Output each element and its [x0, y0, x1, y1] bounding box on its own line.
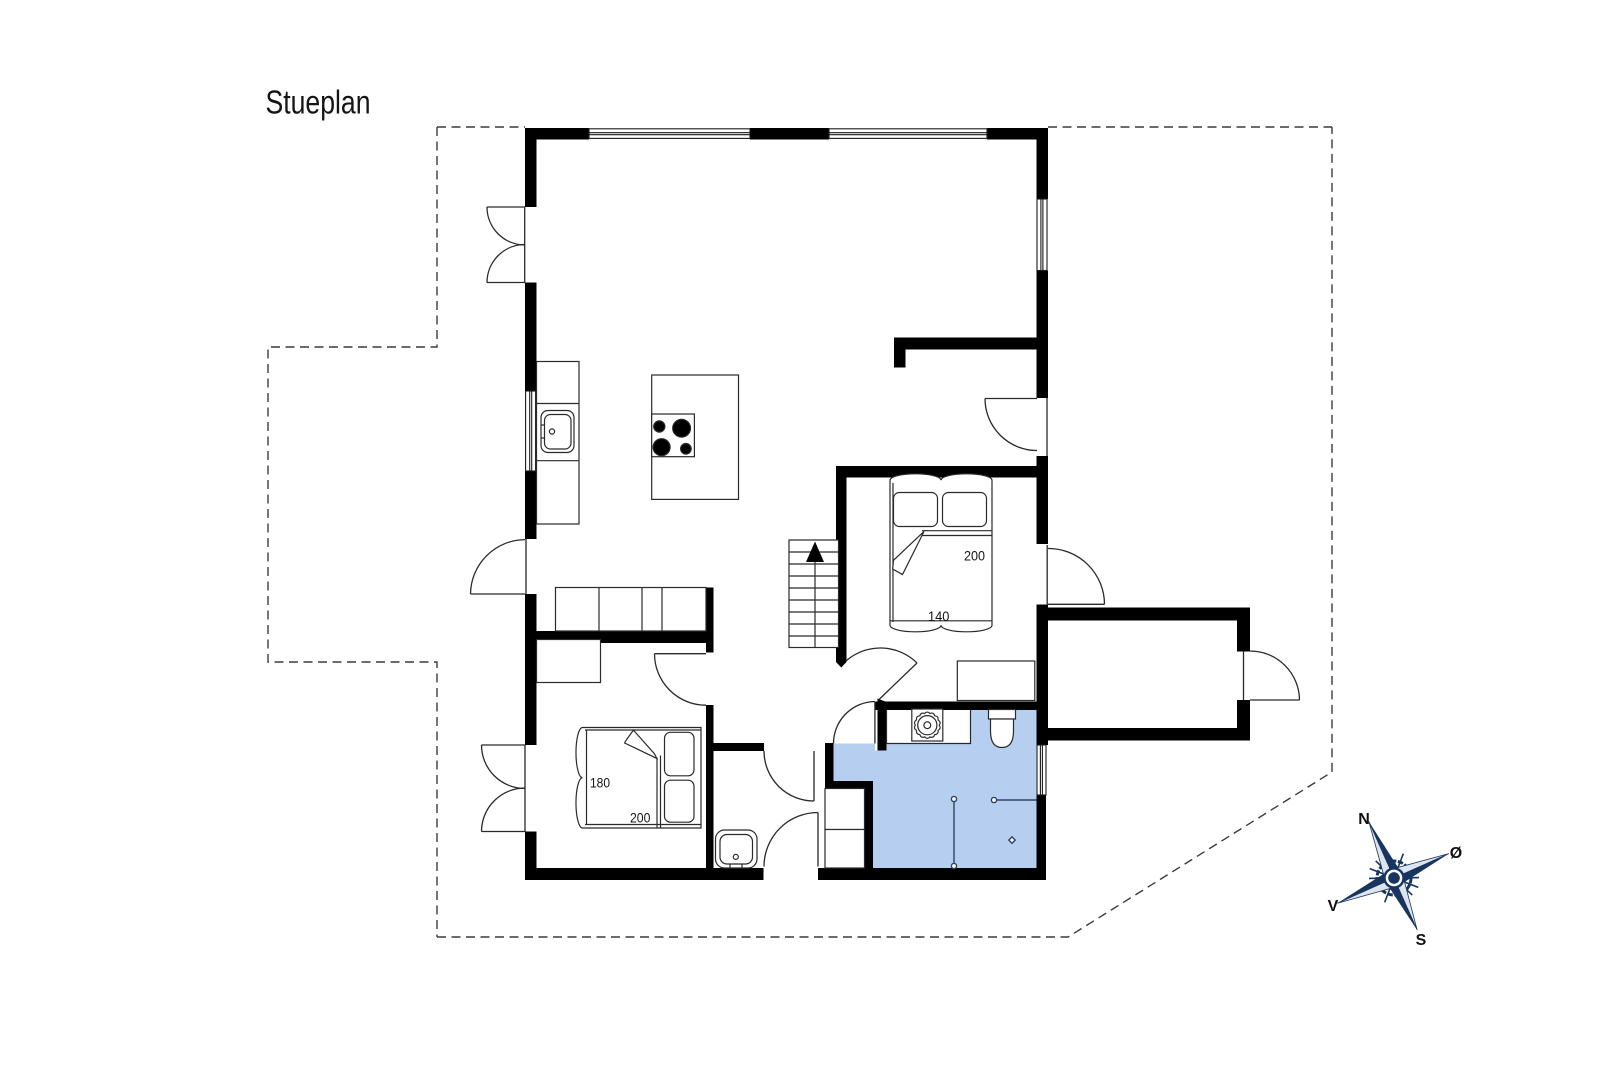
svg-text:200: 200 [964, 549, 985, 565]
svg-text:N: N [1358, 811, 1370, 828]
svg-text:200: 200 [630, 811, 650, 827]
svg-text:V: V [1328, 898, 1339, 915]
svg-text:Stueplan: Stueplan [266, 84, 371, 121]
svg-text:140: 140 [928, 609, 949, 625]
svg-text:S: S [1416, 932, 1427, 949]
svg-text:180: 180 [590, 776, 610, 792]
svg-text:Ø: Ø [1450, 845, 1462, 862]
